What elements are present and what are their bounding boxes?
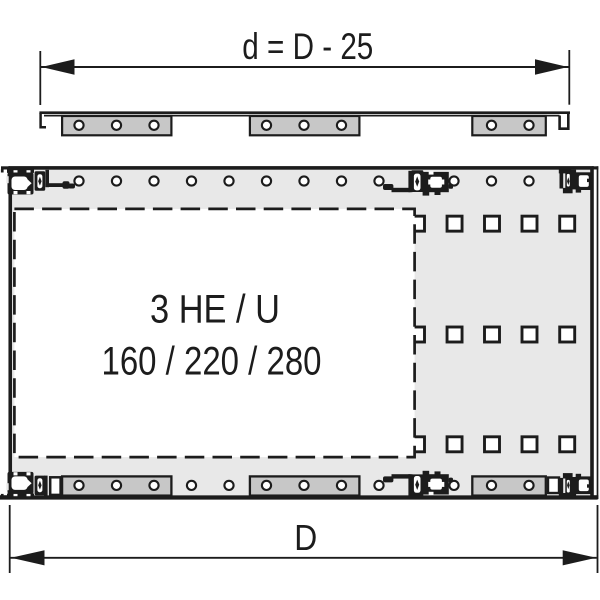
svg-text:3 HE / U: 3 HE / U (150, 287, 280, 331)
svg-text:d = D - 25: d = D - 25 (242, 26, 373, 67)
svg-text:D: D (294, 517, 317, 558)
svg-text:160 / 220 / 280: 160 / 220 / 280 (102, 339, 322, 383)
